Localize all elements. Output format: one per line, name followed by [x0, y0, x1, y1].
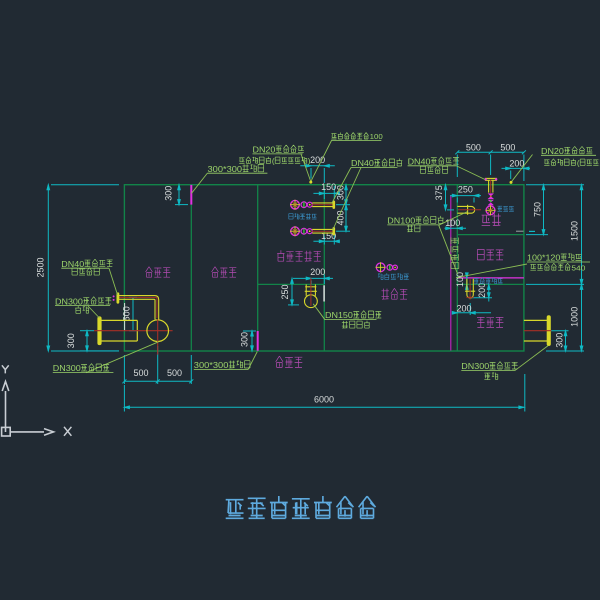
svg-text:300: 300 — [554, 333, 564, 348]
svg-text:300: 300 — [240, 332, 250, 347]
svg-text:2500: 2500 — [36, 257, 46, 277]
svg-text:(: ( — [577, 159, 580, 168]
svg-text:200: 200 — [456, 303, 471, 313]
svg-text:DN40: DN40 — [61, 260, 85, 269]
svg-text:200: 200 — [310, 155, 325, 165]
svg-text:500: 500 — [500, 143, 515, 153]
svg-text:375: 375 — [434, 185, 444, 200]
svg-text:1500: 1500 — [569, 221, 579, 241]
svg-text:DN150: DN150 — [325, 311, 354, 320]
svg-text:100*120: 100*120 — [527, 254, 561, 263]
svg-text:DN100: DN100 — [387, 217, 416, 226]
svg-text:200: 200 — [477, 283, 487, 298]
svg-text:DN300: DN300 — [461, 362, 490, 371]
svg-text:500: 500 — [122, 306, 132, 321]
svg-text:300: 300 — [66, 333, 76, 348]
svg-text:DN300: DN300 — [53, 364, 82, 373]
svg-text:DN40: DN40 — [351, 159, 375, 168]
svg-text:DN20: DN20 — [541, 147, 565, 156]
svg-text:500: 500 — [466, 143, 481, 153]
svg-text:250: 250 — [458, 185, 473, 195]
svg-text:(: ( — [272, 157, 275, 166]
svg-text:100: 100 — [445, 218, 460, 228]
svg-text:300: 300 — [163, 186, 173, 201]
svg-text:200: 200 — [509, 158, 524, 168]
svg-text:): ) — [308, 157, 311, 166]
svg-text:100: 100 — [370, 134, 383, 141]
svg-text:300*300: 300*300 — [208, 164, 243, 174]
svg-text:100: 100 — [455, 272, 465, 287]
svg-text:250: 250 — [280, 284, 290, 299]
svg-text:200: 200 — [310, 267, 325, 277]
svg-text:750: 750 — [533, 202, 543, 217]
svg-text:DN300: DN300 — [55, 297, 84, 306]
svg-text:6000: 6000 — [314, 394, 334, 404]
svg-text:300*300: 300*300 — [194, 360, 229, 370]
svg-text:DN40: DN40 — [408, 157, 432, 166]
svg-text:150: 150 — [321, 182, 336, 192]
svg-text:DN20: DN20 — [253, 146, 277, 155]
svg-text:1000: 1000 — [570, 307, 580, 327]
svg-text:500: 500 — [133, 368, 148, 378]
svg-text:540: 540 — [571, 263, 585, 272]
svg-text:500: 500 — [167, 368, 182, 378]
